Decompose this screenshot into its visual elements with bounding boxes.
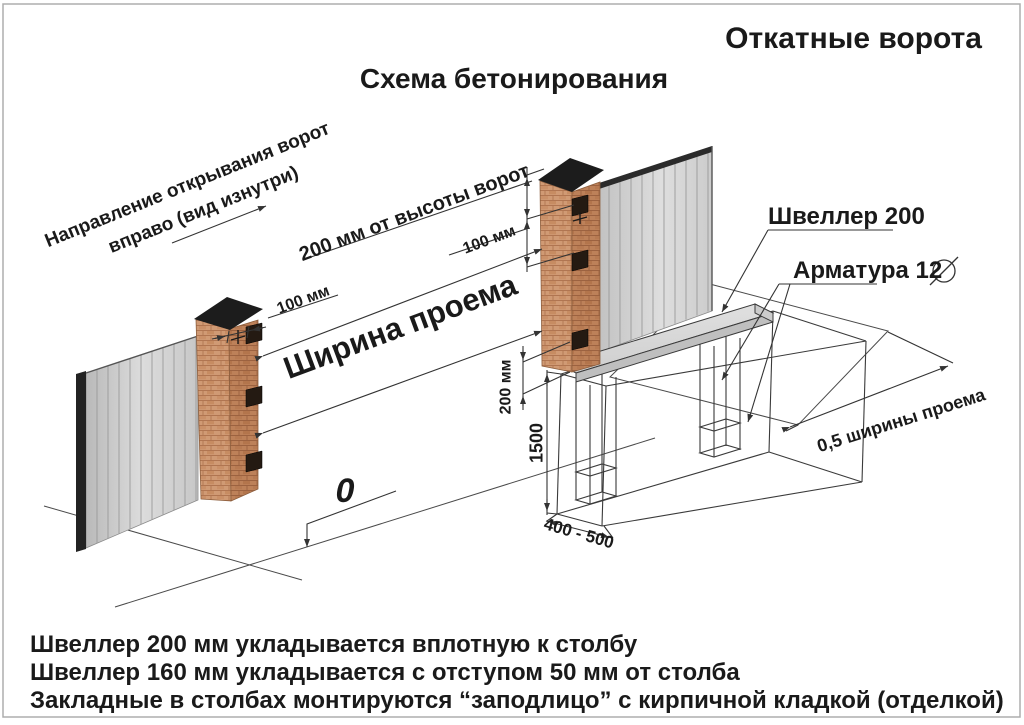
trench-depth-label: 1500 bbox=[526, 423, 546, 463]
channel-level-offset-label: 200 мм bbox=[498, 360, 515, 415]
rebar-cage-left bbox=[576, 374, 616, 504]
channel-label: Швеллер 200 bbox=[768, 203, 925, 230]
plate-offset-right-label: 100 мм bbox=[461, 222, 518, 257]
channel-leader bbox=[722, 230, 768, 312]
plate-offset-left-label: 100 мм bbox=[275, 282, 332, 317]
half-opening-width-label: 0,5 ширины проема bbox=[815, 384, 989, 456]
zero-mark-label: 0 bbox=[336, 472, 355, 510]
drawing-subtitle: Схема бетонирования bbox=[360, 63, 668, 94]
concreting-scheme-drawing: Откатные ворота Схема бетонирования Напр… bbox=[0, 0, 1024, 725]
page-title: Откатные ворота bbox=[725, 22, 982, 55]
left-fence-panel bbox=[76, 336, 198, 552]
diagram-page: Откатные ворота Схема бетонирования Напр… bbox=[0, 0, 1024, 725]
left-pillar bbox=[194, 297, 263, 501]
rebar-label: Арматура 12 bbox=[793, 257, 942, 284]
opening-width-label: Ширина проема bbox=[279, 267, 522, 386]
fence-end-edge bbox=[76, 371, 86, 552]
footnote-line3: Закладные в столбах монтируются “заподли… bbox=[30, 687, 1004, 714]
footnote-line2: Швеллер 160 мм укладывается с отступом 5… bbox=[30, 659, 740, 686]
right-fence-panel bbox=[599, 146, 712, 352]
rebar-cage-middle bbox=[700, 334, 740, 457]
gate-height-offset-label: 200 мм от высоты ворот bbox=[296, 160, 532, 266]
right-pillar bbox=[538, 158, 604, 372]
footnote-line1: Швеллер 200 мм укладывается вплотную к с… bbox=[30, 631, 638, 658]
